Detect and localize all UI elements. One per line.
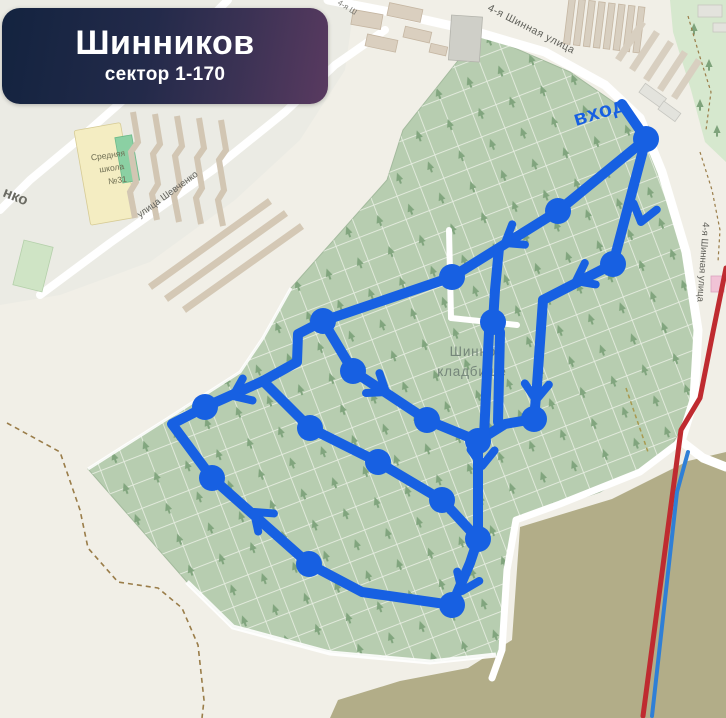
route-node: [199, 465, 225, 491]
banner-subtitle: сектор 1-170: [105, 64, 225, 86]
route-node: [439, 264, 465, 290]
route-node: [340, 358, 366, 384]
route-node: [465, 526, 491, 552]
route-node: [545, 198, 571, 224]
route-node: [297, 415, 323, 441]
map-screenshot: 4-я Шинная улица 4-я Ш 4-я Шинная улица …: [0, 0, 726, 718]
route-segment: [498, 332, 500, 422]
route-node: [192, 394, 218, 420]
route-node: [480, 309, 506, 335]
map-canvas[interactable]: 4-я Шинная улица 4-я Ш 4-я Шинная улица …: [0, 0, 726, 718]
route-node: [439, 592, 465, 618]
route-node: [521, 406, 547, 432]
route-node: [633, 126, 659, 152]
banner-title: Шинников: [75, 26, 254, 62]
route-node: [465, 428, 491, 454]
route-node: [296, 551, 322, 577]
route-node: [310, 308, 336, 334]
route-node: [429, 487, 455, 513]
sector-banner: Шинников сектор 1-170: [2, 8, 328, 104]
route-node: [414, 407, 440, 433]
route-node: [600, 251, 626, 277]
route-node: [365, 449, 391, 475]
route-segment: [484, 332, 489, 436]
